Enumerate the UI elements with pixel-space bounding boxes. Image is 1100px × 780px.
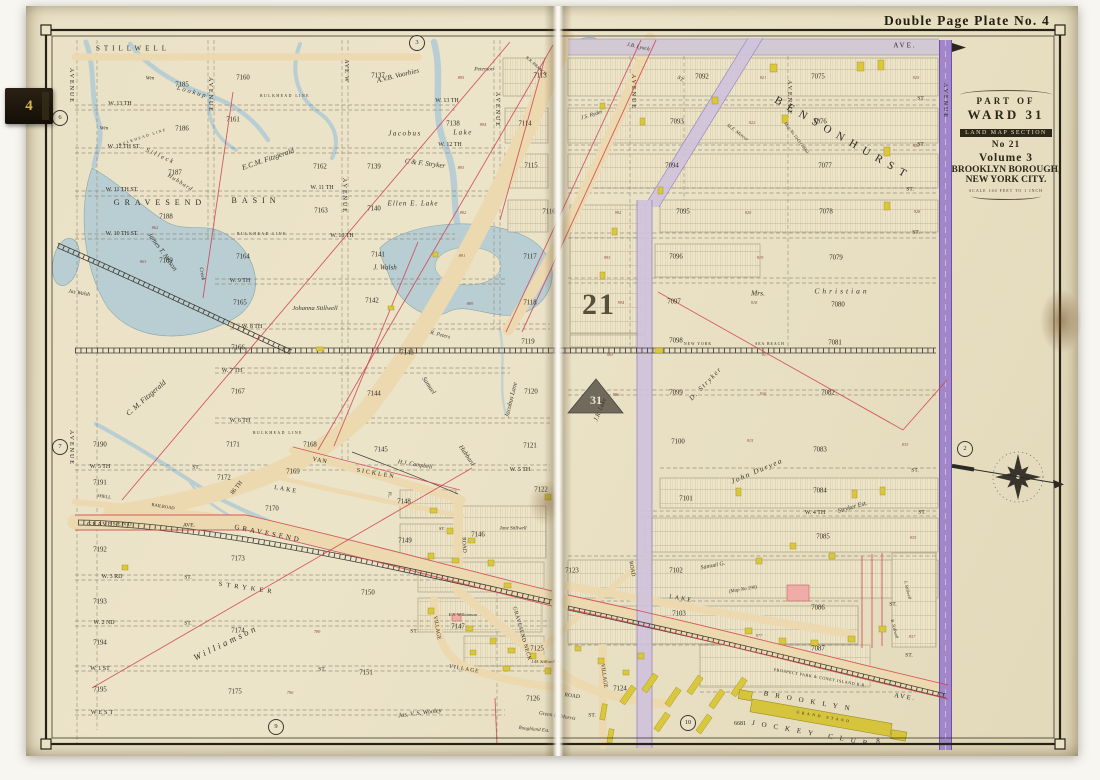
map-label: GRAVESEND NECK <box>511 606 532 661</box>
map-label: Mrs. <box>751 289 765 297</box>
map-label: JOCKEY CLUB <box>751 720 874 748</box>
map-label: W. 12 TH <box>438 142 462 148</box>
map-label: 7147 <box>451 625 465 632</box>
map-label: J.S. Ryder <box>581 110 604 122</box>
map-label: 925 <box>913 76 919 80</box>
map-label: 7097 <box>667 300 681 307</box>
map-label: W. 9 TH <box>230 278 251 284</box>
map-label: Jacobus <box>388 131 421 138</box>
map-label: 7099 <box>669 391 683 398</box>
map-label: 7087 <box>811 647 825 654</box>
map-label: ST. <box>905 653 912 659</box>
map-label: W. 11 TH <box>310 185 333 191</box>
map-label: 915 <box>747 439 753 443</box>
plate-title: Double Page Plate No. 4 <box>884 13 1050 29</box>
map-label: 7082 <box>821 391 835 398</box>
cartouche: PART OF WARD 31 LAND MAP SECTION No 21 V… <box>950 90 1062 200</box>
map-label: BASIN <box>231 197 280 205</box>
map-label: 7098 <box>669 339 683 346</box>
map-label: E.C.M. Fitzgerald <box>241 147 295 172</box>
map-label: ST. <box>318 667 325 673</box>
map-label: 6681 <box>734 721 746 727</box>
map-label: STRYKER <box>218 582 276 596</box>
cartouche-flourish <box>971 196 1041 200</box>
map-label: RAILROAD <box>151 503 175 511</box>
map-label: SHELL <box>97 494 111 500</box>
map-label: 7161 <box>226 118 240 125</box>
map-label: 7096 <box>669 255 683 262</box>
map-label: 891 <box>459 254 465 258</box>
map-label: AVENUE <box>341 178 347 214</box>
map-label: 7164 <box>236 255 250 262</box>
map-label: BROOKLYN <box>763 690 857 713</box>
map-label: 7076 <box>813 120 827 127</box>
map-label: W. 2 ND <box>93 620 114 626</box>
map-label: 893 <box>458 166 464 170</box>
map-label: 993 <box>604 256 610 260</box>
map-label: W. 5 TH <box>510 467 531 473</box>
cartouche-section-number: No 21 <box>950 141 1062 151</box>
map-label: 7185 <box>175 83 189 90</box>
map-label: ST. <box>675 76 684 85</box>
section-circle-number: 3 <box>409 35 425 51</box>
map-label: 889 <box>467 302 473 306</box>
map-label: C. M. Fitzgerald <box>125 379 168 417</box>
section-circle-number: 10 <box>680 715 696 731</box>
map-label: 919 <box>757 256 763 260</box>
map-label: W. 13 TH <box>108 101 132 107</box>
map-label: 7141 <box>371 253 385 260</box>
map-label: 7086 <box>811 606 825 613</box>
cartouche-ward: WARD 31 <box>950 108 1062 122</box>
map-label: 862 <box>152 226 158 230</box>
map-label: J. Walsh <box>373 265 396 272</box>
map-label: Johanna Stillwell <box>292 306 337 313</box>
map-label: ST. <box>192 465 199 471</box>
map-label: 7078 <box>819 210 833 217</box>
map-label: Map No 1043 (1896) <box>783 122 809 155</box>
map-label: Peterson <box>474 67 494 73</box>
map-label: 933 <box>902 443 908 447</box>
map-label: VILLAGE <box>448 665 479 676</box>
map-label: 7121 <box>523 444 537 451</box>
map-label: ST. <box>184 575 191 581</box>
map-label: 7143 <box>400 351 414 358</box>
map-label: 7172 <box>217 476 231 483</box>
map-label: B. Stillwell <box>889 619 898 639</box>
map-label: GRAVESEND <box>234 524 303 544</box>
map-label: ST. <box>889 602 896 608</box>
map-label: 7125 <box>530 647 544 654</box>
map-label: ST. <box>906 187 913 193</box>
map-label: 7079 <box>829 256 843 263</box>
map-label: 7102 <box>669 569 683 576</box>
map-label: 7173 <box>231 557 245 564</box>
map-label: 920 <box>745 211 751 215</box>
atlas-photo: { "page": { "plate_title": "Double Page … <box>0 0 1100 780</box>
map-label: 7140 <box>367 207 381 214</box>
map-label: 863 <box>140 260 146 264</box>
map-label: VILLAGE <box>431 616 441 640</box>
map-label: ST. <box>410 629 417 635</box>
map-label: Williamson <box>192 623 259 662</box>
map-label: 977 <box>756 634 762 638</box>
map-label: AVE. <box>183 523 195 529</box>
map-label: 7083 <box>813 448 827 455</box>
plate-index-tab: 4 <box>5 88 53 124</box>
map-label: D. Stryker <box>688 366 723 402</box>
map-label: VILLAGE <box>599 664 608 688</box>
map-label: 7077 <box>818 164 832 171</box>
map-label: 7186 <box>175 127 189 134</box>
map-label: W. 4 TH <box>805 510 826 516</box>
map-label: SICKLEN <box>356 468 396 481</box>
map-label: Christian <box>814 287 869 295</box>
map-label: Wm <box>146 76 155 82</box>
map-label: BULKHEAD LINE <box>253 432 303 436</box>
map-label: W. 6 TH <box>230 418 251 424</box>
map-label: Silleck <box>144 148 175 167</box>
map-label: 7151 <box>359 671 373 678</box>
map-label: John Duryea <box>730 457 784 486</box>
map-label: 7114 <box>518 122 531 129</box>
map-label: 7149 <box>398 539 412 546</box>
map-label: 928 <box>914 210 920 214</box>
map-label: 7092 <box>695 75 709 82</box>
map-label: SEA BEACH <box>755 343 785 347</box>
map-label: AVENUE <box>494 92 500 128</box>
map-label: 7146 <box>471 533 485 540</box>
map-label: 7195 <box>93 688 107 695</box>
map-label: LAKE <box>274 485 299 495</box>
map-label: M.E. Mercer <box>725 123 748 142</box>
map-label: W. 7 TH <box>222 368 243 374</box>
map-label: 86 TH <box>230 480 244 496</box>
map-label: Wm <box>100 126 109 132</box>
map-label: 935 <box>910 536 916 540</box>
section-circle-number: 6 <box>52 110 68 126</box>
map-label: 926 <box>913 144 919 148</box>
map-label: 921 <box>760 76 766 80</box>
map-label: VAN <box>312 457 328 466</box>
map-label: 7189 <box>159 259 173 266</box>
map-label: 7171 <box>226 443 240 450</box>
map-label: 922 <box>749 121 755 125</box>
page-gutter <box>544 6 572 756</box>
map-label: 7145 <box>374 448 388 455</box>
map-label: 7142 <box>365 299 379 306</box>
map-label: AVE. <box>894 693 917 703</box>
map-label: Jacobus Lane <box>504 382 519 418</box>
map-label: W. 10 TH <box>330 233 354 239</box>
map-label: AVENUE <box>68 68 74 104</box>
map-label: R. Peters <box>430 331 451 341</box>
map-label: 7081 <box>828 341 842 348</box>
section-circle-number: 9 <box>268 719 284 735</box>
cartouche-land-map-section: LAND MAP SECTION <box>960 129 1052 137</box>
map-label: Creek <box>197 267 205 281</box>
map-label: W. 10 TH ST. <box>105 231 138 237</box>
map-label: 992 <box>615 211 621 215</box>
map-label: J.B. Lynch <box>626 43 650 54</box>
map-label: 7080 <box>831 303 845 310</box>
map-label: H.J. Campbell <box>397 459 432 470</box>
map-label: 7175 <box>228 690 242 697</box>
map-label: 7118 <box>523 301 536 308</box>
map-label: 7139 <box>367 165 381 172</box>
map-label: 7093 <box>670 120 684 127</box>
map-label: ROAD <box>460 537 466 553</box>
map-label: 7166 <box>231 346 245 353</box>
map-label: BULKHEAD LINE <box>119 128 168 147</box>
map-label: GRAVESEND <box>87 522 133 528</box>
map-label: STILLWELL <box>96 46 170 53</box>
map-label: 7094 <box>665 164 679 171</box>
map-label: 7174 <box>231 629 245 636</box>
map-label: ST. <box>911 468 918 474</box>
map-label: 7137 <box>371 74 385 81</box>
map-label: 7085 <box>816 535 830 542</box>
map-label: 994 <box>618 301 624 305</box>
map-label: 7138 <box>446 122 460 129</box>
map-label: Jane Stillwell <box>499 527 526 532</box>
map-label: Samuel <box>420 376 436 396</box>
cartouche-flourish <box>960 90 1052 95</box>
map-label: 7160 <box>236 76 250 83</box>
plate-index-tab-number: 4 <box>25 98 33 115</box>
map-label: W. 1 ST <box>90 666 110 672</box>
map-label: AVENUE <box>68 430 74 466</box>
map-label: 7169 <box>286 470 300 477</box>
map-label: ST. <box>918 510 925 516</box>
map-label: 7119 <box>521 340 534 347</box>
map-label: ST. <box>588 713 595 719</box>
map-label: NEW YORK <box>684 343 712 347</box>
map-label: 789 <box>314 630 320 634</box>
map-label: AVE. <box>893 43 916 50</box>
map-label: BULKHEAD LINE <box>260 95 310 99</box>
map-label: 7124 <box>613 687 627 694</box>
map-label: 7101 <box>679 497 693 504</box>
map-label: 21 <box>582 290 616 320</box>
map-label: (Map No 190) <box>729 585 758 594</box>
map-label: 7193 <box>93 600 107 607</box>
map-label: 937 <box>909 635 915 639</box>
map-label: BULKHEAD LINE <box>237 233 287 237</box>
map-label: E.S. Williamson <box>449 613 478 618</box>
map-label: 31 <box>590 394 602 406</box>
map-label: 7162 <box>313 165 327 172</box>
map-label: ST. <box>912 230 919 236</box>
map-label: AVENUE <box>942 83 948 119</box>
map-label: 7103 <box>672 612 686 619</box>
section-circle-number: 7 <box>52 439 68 455</box>
map-label: 7165 <box>233 301 247 308</box>
map-label: 7191 <box>93 481 107 488</box>
map-label: Samuel G. <box>700 561 726 572</box>
cartouche-scale-note: SCALE 160 FEET TO 1 INCH <box>950 189 1062 193</box>
map-label: 892 <box>460 211 466 215</box>
map-label: 916 <box>760 392 766 396</box>
map-label: 7084 <box>813 489 827 496</box>
map-label: GRAVESEND <box>114 199 206 207</box>
map-label: 7168 <box>303 443 317 450</box>
map-label: 790 <box>287 691 293 695</box>
cartouche-part-of: PART OF <box>950 97 1062 106</box>
map-label: 963 <box>607 353 613 357</box>
map-label: ROAD <box>627 561 635 577</box>
map-label: W. 13 TH <box>435 98 459 104</box>
map-label: 7100 <box>671 440 685 447</box>
map-label: Stryker Est. <box>838 501 869 516</box>
map-label: W. 5 TH <box>90 464 111 470</box>
map-label: Ellen E. Lake <box>388 201 439 208</box>
map-label: James T. Nelson <box>146 232 178 273</box>
map-label: 7126 <box>526 697 540 704</box>
map-label: WEST <box>91 710 115 716</box>
map-label: 7115 <box>524 164 537 171</box>
map-label: 7150 <box>361 591 375 598</box>
map-label: Lake <box>453 130 473 137</box>
map-label: 7190 <box>93 443 107 450</box>
map-label: AVE W <box>343 59 349 83</box>
map-label: 7192 <box>93 548 107 555</box>
map-label: 7144 <box>367 392 381 399</box>
map-label: J. Stillwell <box>903 580 912 600</box>
map-label: W. 11 TH ST. <box>106 187 139 193</box>
map-label: Hubbard <box>457 445 475 468</box>
map-label: LAKE <box>669 594 694 604</box>
map-label: ST. <box>917 96 924 102</box>
cartouche-city: NEW YORK CITY. <box>950 176 1062 186</box>
map-label: 7187 <box>168 171 182 178</box>
map-label: W. 8 TH <box>242 324 263 330</box>
section-circle-number: 2 <box>957 441 973 457</box>
map-label: 7117 <box>523 255 536 262</box>
map-label: 917 <box>762 353 768 357</box>
map-label: GRAND STAND <box>796 710 852 724</box>
map-label: AVENUE <box>630 74 636 110</box>
map-label: 7170 <box>265 507 279 514</box>
map-label: 7095 <box>676 210 690 217</box>
map-label: 894 <box>480 123 486 127</box>
map-label: 7163 <box>314 209 328 216</box>
map-label: 7167 <box>231 390 245 397</box>
map-label: PL. <box>387 492 392 498</box>
map-label: 918 <box>751 301 757 305</box>
cartouche-volume: Volume 3 <box>950 152 1062 164</box>
map-label: C & F. Stryker <box>404 158 445 170</box>
map-label: 7075 <box>811 75 825 82</box>
map-label: 7148 <box>397 500 411 507</box>
map-label: 7120 <box>524 390 538 397</box>
map-label: ST. <box>439 527 445 532</box>
map-label: W. 3 RD <box>102 574 123 580</box>
map-label: ST. <box>184 621 191 627</box>
map-label: PROSPECT PARK & CONEY ISLAND R.R. <box>773 668 866 688</box>
map-label: 8 <box>876 739 880 746</box>
map-label: Jas Walsh <box>68 289 91 298</box>
map-label: 7188 <box>159 215 173 222</box>
map-label: 7194 <box>93 641 107 648</box>
map-label: Jas. V. S. Wooley <box>398 708 442 720</box>
map-label: 996 <box>613 393 619 397</box>
map-label: 895 <box>458 76 464 80</box>
